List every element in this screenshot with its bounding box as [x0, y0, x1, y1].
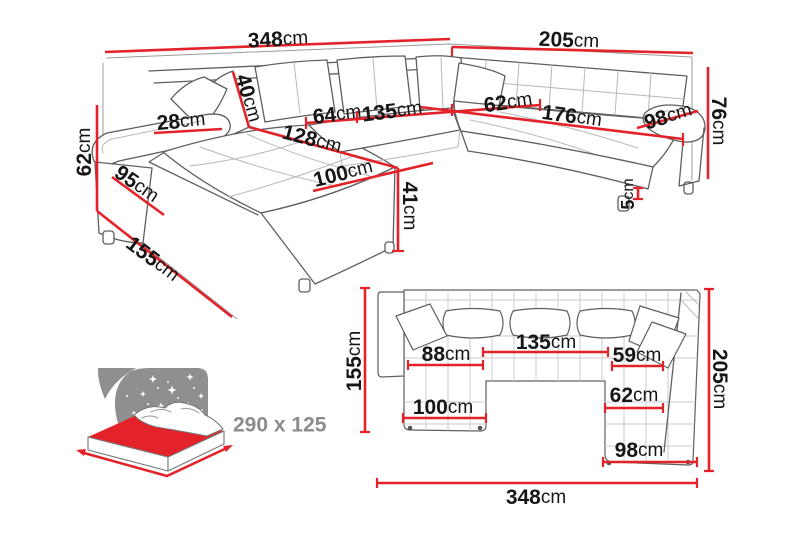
- plan-dim-label-88: 88cm: [422, 343, 471, 366]
- plan-dim-label-205: 205cm: [709, 349, 732, 409]
- sofa-dimensions-diagram: 348cm 205cm 76cm 62cm 40cm 28cm 64cm 135…: [0, 0, 800, 533]
- plan-dim-label-100: 100cm: [413, 396, 473, 419]
- plan-dim-label-155: 155cm: [343, 331, 366, 391]
- perspective-view: 348cm 205cm 76cm 62cm 40cm 28cm 64cm 135…: [73, 26, 731, 319]
- dim-label-5-leg: 5cm: [618, 178, 638, 209]
- plan-dim-label-98: 98cm: [615, 439, 664, 462]
- dim-label-76-height: 76cm: [708, 97, 731, 146]
- diagram-canvas: 348cm 205cm 76cm 62cm 40cm 28cm 64cm 135…: [0, 0, 800, 533]
- plan-dim-label-62: 62cm: [610, 384, 659, 407]
- dim-label-155-depth: 155cm: [122, 232, 184, 287]
- plan-dim-label-59: 59cm: [613, 344, 662, 367]
- plan-dim-label-135: 135cm: [516, 331, 576, 354]
- dim-label-205-top: 205cm: [538, 27, 599, 53]
- dim-label-62-height: 62cm: [73, 128, 96, 177]
- plan-dim-label-348: 348cm: [506, 486, 566, 509]
- dim-label-41-seat-height: 41cm: [399, 182, 422, 231]
- sofa-bed-icon: 290 x 125: [76, 368, 327, 476]
- sleeping-size-label: 290 x 125: [233, 414, 327, 437]
- dim-label-348-top: 348cm: [247, 26, 308, 52]
- plan-view: 155cm 205cm 348cm 135cm 88cm 59cm 62cm 1…: [343, 288, 732, 509]
